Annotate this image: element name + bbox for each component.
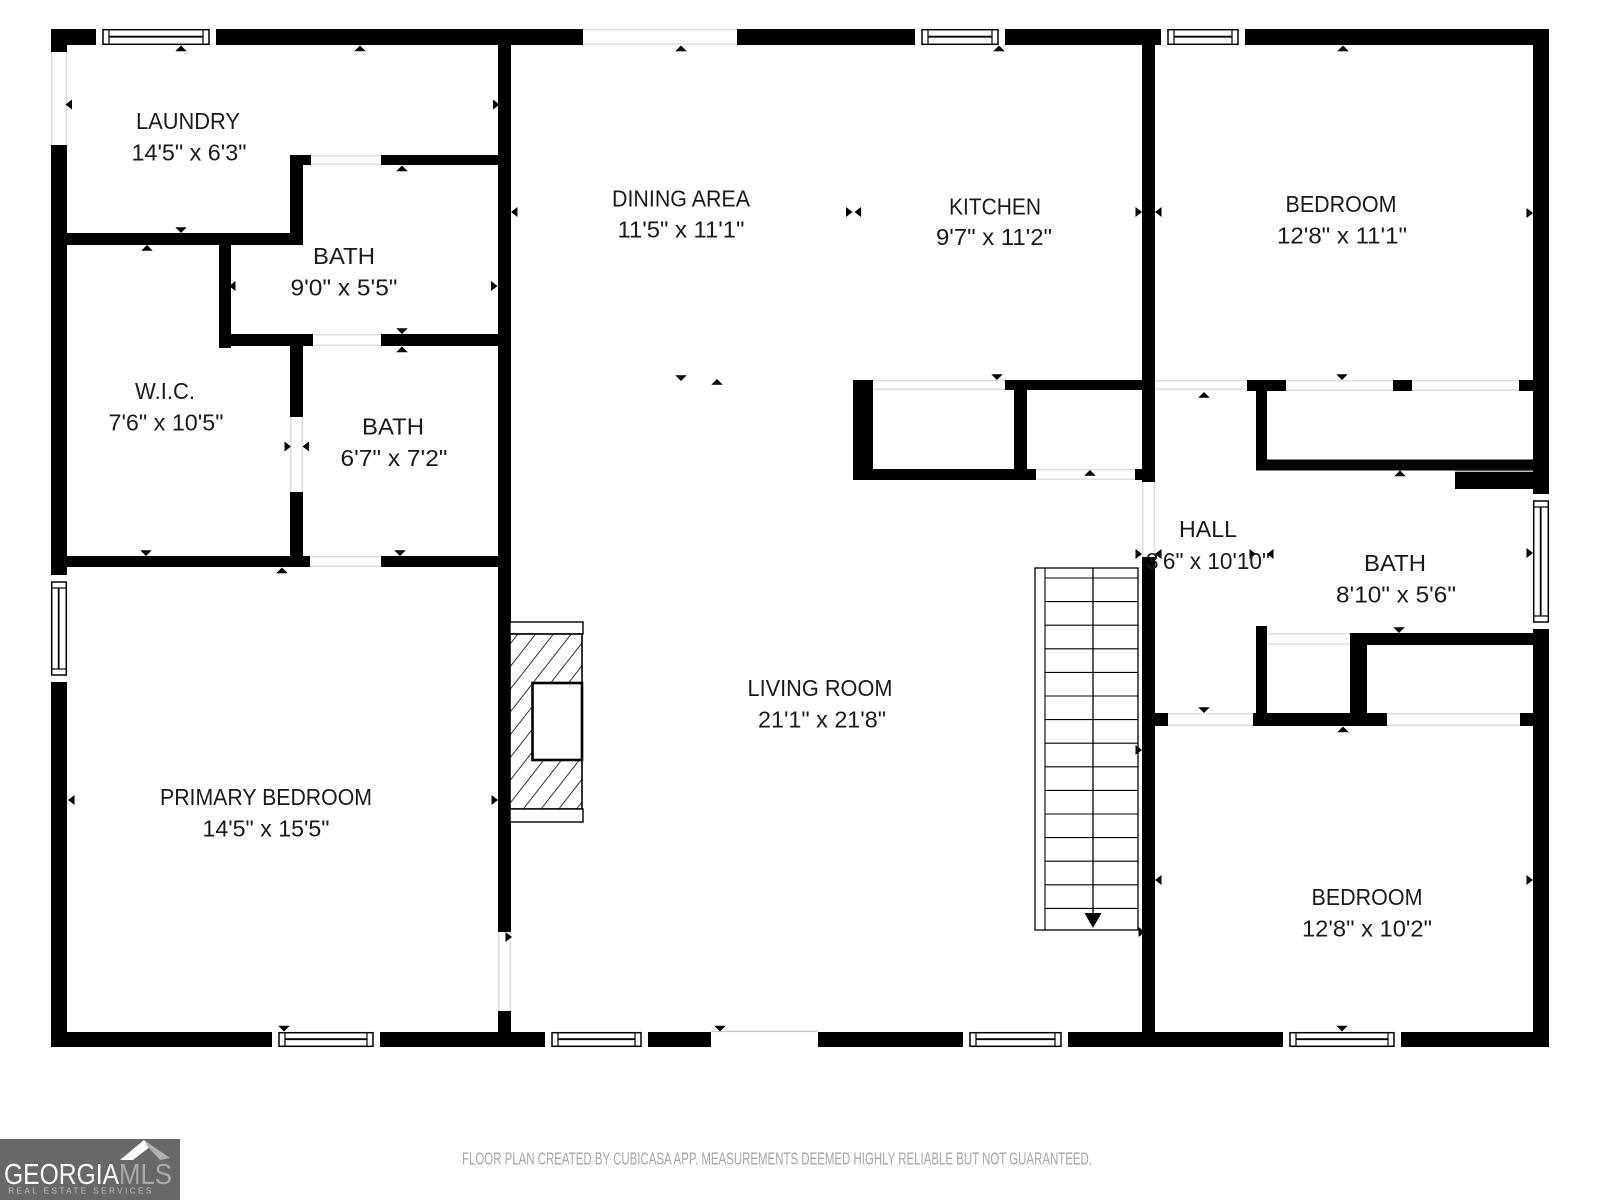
svg-text:14'5" x 15'5": 14'5" x 15'5" xyxy=(203,816,330,842)
svg-text:REAL ESTATE SERVICES: REAL ESTATE SERVICES xyxy=(8,1187,154,1196)
svg-text:6'7" x 7'2": 6'7" x 7'2" xyxy=(341,445,448,471)
svg-text:12'8" x 10'2": 12'8" x 10'2" xyxy=(1302,916,1432,942)
svg-text:BATH: BATH xyxy=(1364,550,1426,576)
svg-text:9'0" x 5'5": 9'0" x 5'5" xyxy=(291,275,398,301)
svg-text:W.I.C.: W.I.C. xyxy=(135,378,195,404)
svg-text:FLOOR PLAN CREATED BY CUBICASA: FLOOR PLAN CREATED BY CUBICASA APP. MEAS… xyxy=(462,1149,1092,1169)
svg-text:21'1" x 21'8": 21'1" x 21'8" xyxy=(758,707,886,733)
svg-text:LAUNDRY: LAUNDRY xyxy=(136,108,240,134)
svg-text:3'6" x 10'10": 3'6" x 10'10" xyxy=(1146,548,1270,574)
svg-text:BEDROOM: BEDROOM xyxy=(1286,191,1397,217)
svg-text:7'6" x 10'5": 7'6" x 10'5" xyxy=(109,410,224,436)
svg-text:PRIMARY BEDROOM: PRIMARY BEDROOM xyxy=(160,784,372,810)
svg-text:DINING AREA: DINING AREA xyxy=(612,186,750,212)
svg-text:BATH: BATH xyxy=(362,414,424,440)
svg-text:14'5" x 6'3": 14'5" x 6'3" xyxy=(132,140,247,166)
svg-text:KITCHEN: KITCHEN xyxy=(949,194,1041,220)
svg-text:12'8" x 11'1": 12'8" x 11'1" xyxy=(1277,223,1407,249)
svg-text:9'7" x 11'2": 9'7" x 11'2" xyxy=(936,224,1052,250)
svg-text:BATH: BATH xyxy=(313,243,375,269)
svg-text:8'10" x 5'6": 8'10" x 5'6" xyxy=(1336,582,1456,608)
svg-text:HALL: HALL xyxy=(1179,516,1237,542)
svg-text:BEDROOM: BEDROOM xyxy=(1312,884,1423,910)
svg-text:LIVING ROOM: LIVING ROOM xyxy=(748,675,893,701)
svg-text:11'5" x 11'1": 11'5" x 11'1" xyxy=(618,217,745,243)
